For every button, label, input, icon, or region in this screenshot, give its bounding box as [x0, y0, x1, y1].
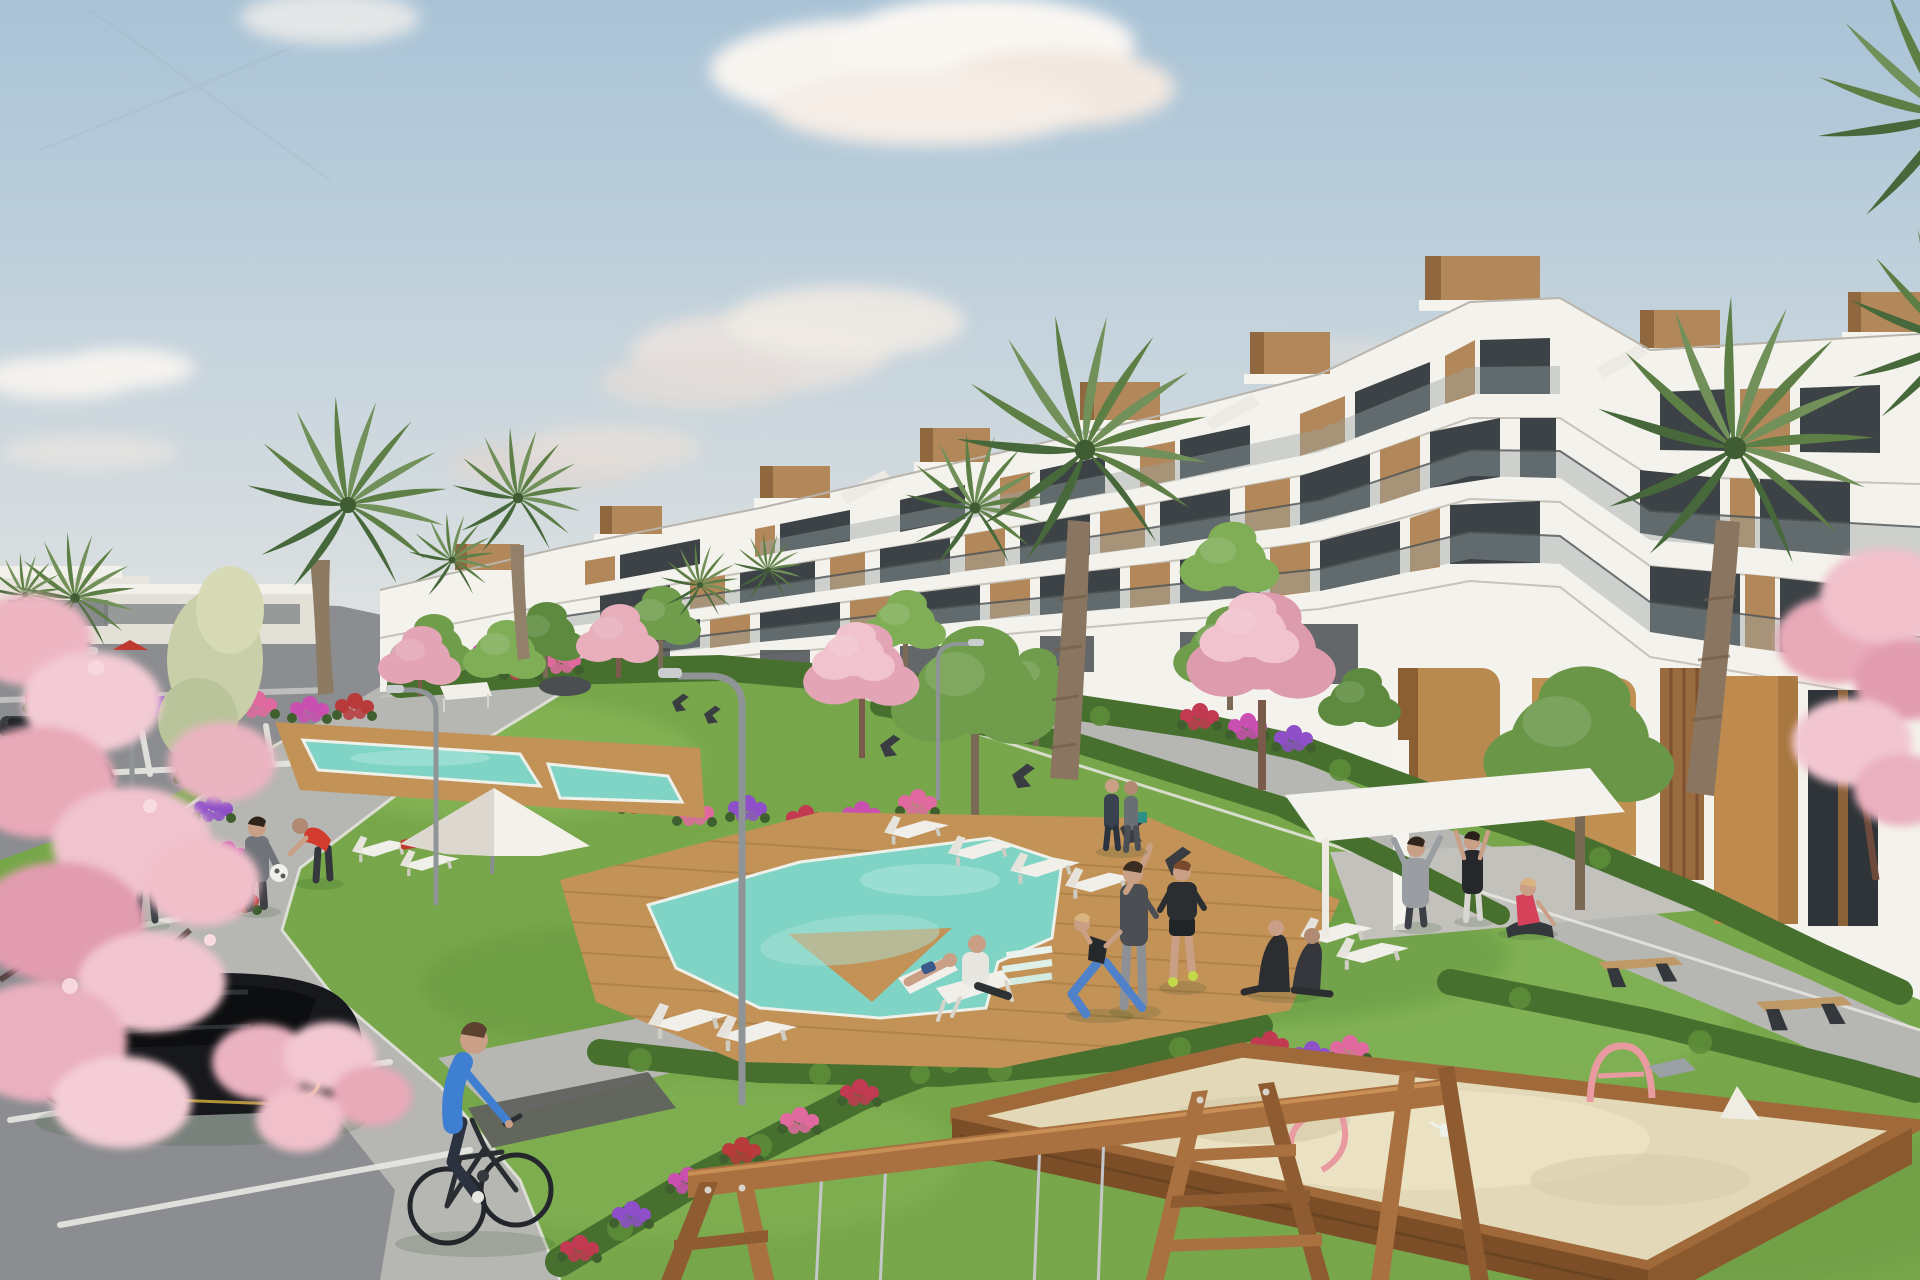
blossom-dot	[143, 799, 157, 813]
head	[1268, 920, 1284, 936]
wood-panel	[585, 556, 615, 585]
sand-shadow	[1530, 1154, 1750, 1206]
torso	[452, 1062, 463, 1124]
ball-patch	[281, 874, 286, 879]
shoe	[472, 1191, 484, 1203]
roof-box	[594, 506, 668, 543]
blossom	[168, 722, 276, 802]
hand	[505, 1120, 513, 1128]
bolt	[739, 1185, 746, 1192]
bolt	[1263, 1089, 1270, 1096]
water-highlight	[860, 864, 1000, 896]
bush-body	[196, 566, 264, 654]
cloud	[600, 354, 800, 410]
roof-box	[1419, 256, 1546, 311]
torso	[1124, 796, 1138, 830]
blossom-dot	[204, 934, 216, 946]
blossom	[144, 838, 260, 926]
tree-trunk	[1258, 700, 1266, 790]
cloud	[770, 70, 1090, 146]
head	[943, 953, 957, 967]
roof-box	[754, 466, 836, 508]
water-highlight	[350, 750, 490, 766]
head	[292, 818, 308, 834]
roof-box	[1634, 310, 1726, 358]
lamp-head	[968, 639, 984, 646]
tree-trunk	[971, 730, 979, 825]
render-viewport	[0, 0, 1920, 1280]
head	[1105, 779, 1119, 793]
bolt	[1197, 1097, 1204, 1104]
cloud	[0, 434, 180, 470]
blossom	[256, 1088, 344, 1152]
blossom-dot	[88, 660, 104, 676]
pergola-post	[1322, 838, 1329, 938]
shoe	[1168, 977, 1178, 987]
head	[968, 935, 986, 953]
scene-render	[0, 0, 1920, 1280]
football	[270, 864, 288, 882]
torso	[962, 952, 989, 986]
lamp-head	[386, 685, 404, 693]
toy-seat	[1598, 1074, 1644, 1076]
teal-bag	[1138, 812, 1147, 823]
head	[1304, 928, 1320, 944]
blossom-dot	[62, 978, 78, 994]
blossom	[332, 1066, 412, 1126]
fire-bowl	[539, 676, 591, 696]
crank	[477, 1170, 489, 1182]
head	[1124, 781, 1138, 795]
roof-box	[1244, 332, 1336, 384]
bolt	[705, 1187, 712, 1194]
torso	[1104, 794, 1119, 830]
shoe	[1188, 971, 1198, 981]
blossom	[52, 1056, 192, 1148]
lamp-head	[658, 668, 682, 678]
cloud	[55, 348, 195, 388]
torso	[1167, 882, 1197, 920]
tree-trunk	[859, 698, 865, 758]
cloud	[725, 286, 965, 358]
tan-wall-shade	[1778, 676, 1798, 924]
cloud	[522, 424, 702, 472]
ball-patch	[275, 869, 280, 874]
